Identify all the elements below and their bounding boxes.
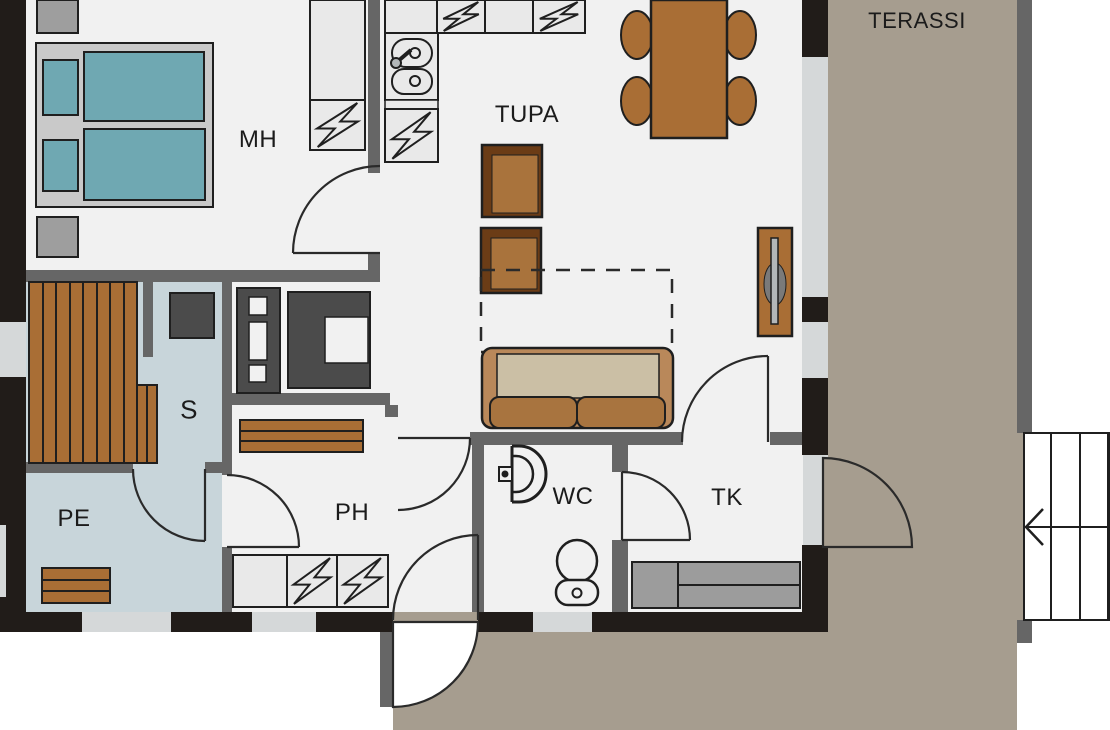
- room-label-tk: TK: [711, 484, 743, 512]
- room-label-s: S: [180, 395, 198, 426]
- room-label-pe: PE: [57, 505, 90, 533]
- wall-right-top: [802, 0, 828, 57]
- room-label-wc: WC: [553, 483, 594, 511]
- window-bottom-1: [82, 612, 171, 632]
- wall-bottom-5: [592, 612, 828, 632]
- room-label-ph: PH: [335, 499, 369, 527]
- wall-tupa-south: [470, 432, 683, 445]
- wall-right-mid1: [802, 297, 828, 322]
- window-left-sliver: [0, 525, 6, 597]
- nightstand-bottom: [37, 217, 78, 257]
- window-bottom-wc: [533, 612, 592, 632]
- wall-mh-east-upper: [368, 0, 380, 173]
- floor-plan: MH TUPA TERASSI S PE PH WC TK: [0, 0, 1110, 730]
- wall-right-bottom: [802, 545, 828, 632]
- wall-mh-south: [26, 270, 380, 282]
- wall-nook-jog: [385, 405, 398, 417]
- ph-cabinets: [233, 555, 388, 607]
- terrace-edge-right-lower: [1017, 620, 1032, 643]
- room-label-mh: MH: [239, 126, 277, 154]
- wall-heater: [758, 228, 792, 336]
- terrace-edge-right-upper: [1017, 0, 1032, 433]
- window-right-2: [802, 322, 828, 378]
- nightstand-top: [37, 0, 78, 33]
- wall-sauna-stub: [143, 282, 153, 357]
- room-label-tupa: TUPA: [495, 101, 559, 129]
- wc-toilet: [556, 540, 598, 605]
- wall-bottom-4: [478, 612, 533, 632]
- sofa: [482, 348, 673, 428]
- wall-bottom-2: [171, 612, 252, 632]
- kitchen-sink: [385, 33, 438, 100]
- armchair-2: [481, 228, 541, 293]
- sauna-benches: [29, 282, 157, 463]
- wall-s-pe-east: [205, 462, 232, 473]
- terrace-stairs: [1024, 433, 1110, 620]
- armchair-1: [482, 145, 542, 217]
- dining-table: [651, 0, 727, 138]
- wall-left-upper: [0, 0, 26, 322]
- double-bed: [36, 43, 213, 207]
- terrace-notch: [1017, 433, 1024, 620]
- wall-bottom-3: [316, 612, 393, 632]
- kitchen-counter-top: [385, 0, 585, 33]
- kitchen-counter-left: [385, 100, 438, 162]
- wardrobe: [310, 0, 365, 150]
- wall-tupa-south-stub: [770, 432, 803, 445]
- window-left: [0, 322, 26, 377]
- tk-bench: [632, 562, 800, 608]
- ph-bench: [240, 420, 363, 452]
- fireplace-side-unit: [237, 288, 280, 393]
- wall-nook-south: [222, 393, 390, 405]
- window-right-long: [802, 57, 828, 297]
- window-bottom-2: [252, 612, 316, 632]
- sauna-stove: [170, 293, 214, 338]
- wall-right-mid2: [802, 378, 828, 455]
- wall-wet-east-up: [222, 282, 232, 475]
- wall-bottom-1: [0, 612, 82, 632]
- wall-wc-east-lower: [612, 540, 628, 612]
- wall-wc-east-upper: [612, 445, 628, 472]
- room-label-terassi: TERASSI: [868, 8, 966, 34]
- wall-wet-east-low: [222, 547, 232, 612]
- pe-bench: [42, 568, 110, 603]
- fireplace: [288, 292, 370, 388]
